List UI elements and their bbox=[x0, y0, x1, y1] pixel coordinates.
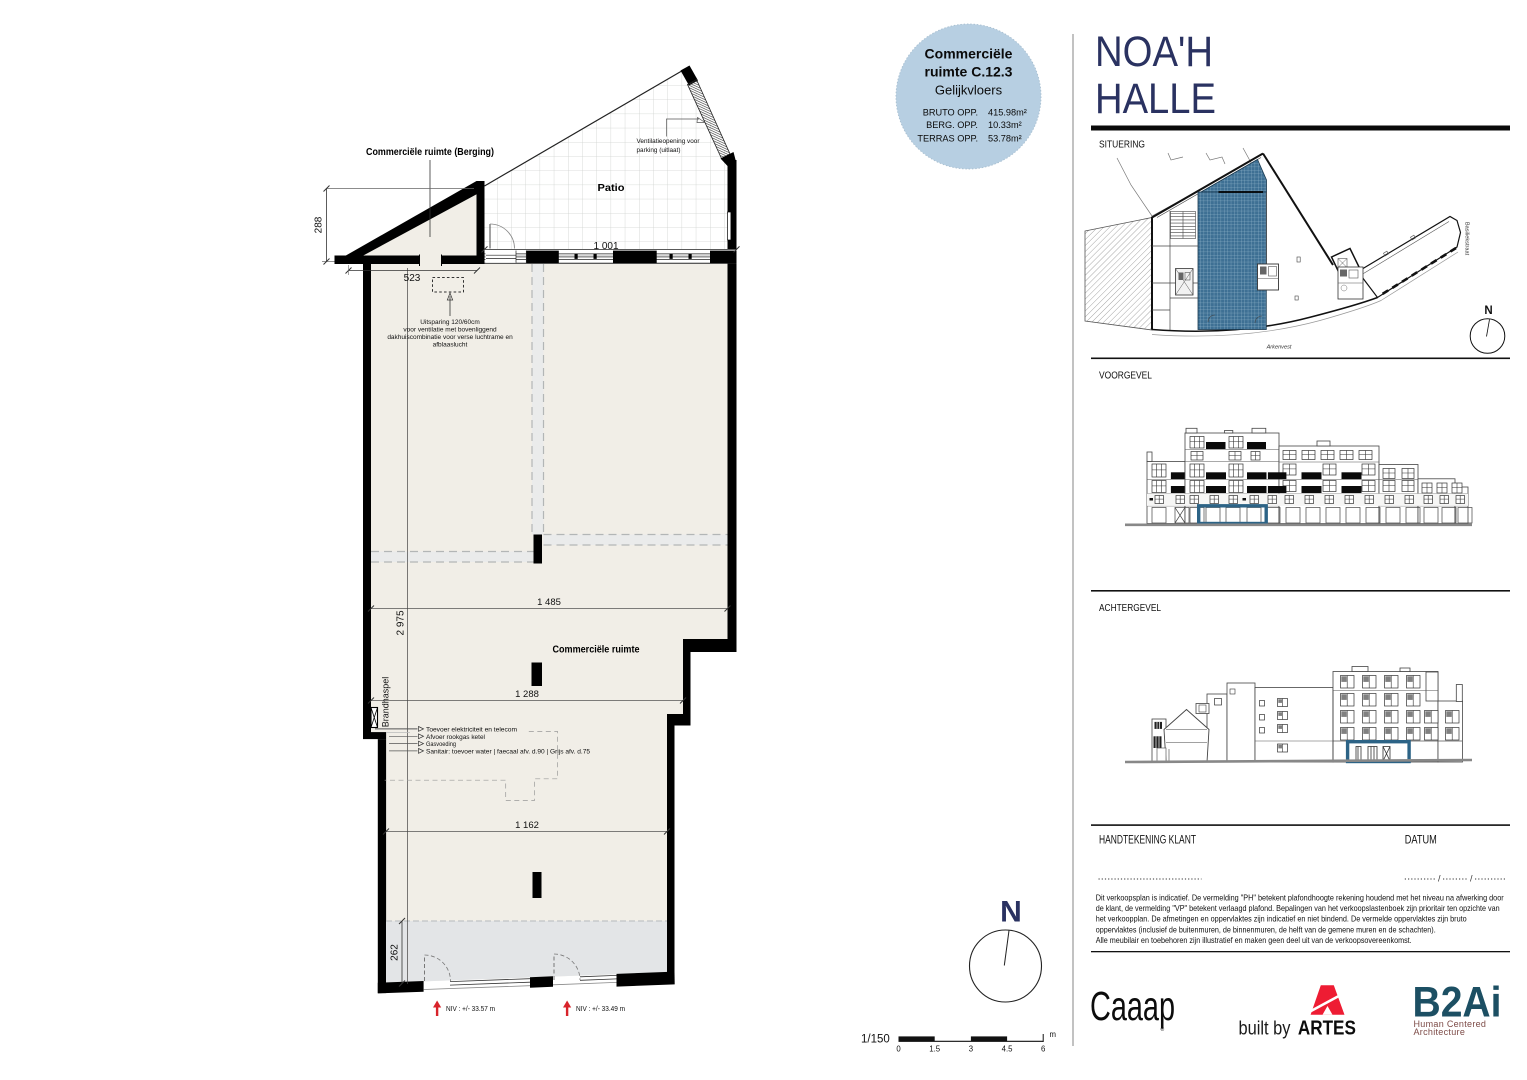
svg-text:Dit verkoopsplan is indicatief: Dit verkoopsplan is indicatief. De verme… bbox=[1096, 893, 1504, 903]
svg-text:Gasvoeding: Gasvoeding bbox=[426, 741, 456, 748]
svg-text:1.5: 1.5 bbox=[929, 1045, 941, 1054]
svg-text:Toevoer elektriciteit en telec: Toevoer elektriciteit en telecom bbox=[426, 726, 517, 733]
svg-text:1 288: 1 288 bbox=[515, 689, 539, 700]
svg-text:DATUM: DATUM bbox=[1405, 835, 1437, 847]
svg-text:NIV : +/- 33.57 m: NIV : +/- 33.57 m bbox=[446, 1004, 495, 1013]
svg-text:Arkenvest: Arkenvest bbox=[1266, 345, 1292, 351]
svg-text:6: 6 bbox=[1041, 1045, 1045, 1054]
svg-text:10.33m²: 10.33m² bbox=[988, 120, 1022, 130]
svg-text:ARTES: ARTES bbox=[1298, 1018, 1356, 1040]
svg-text:1 001: 1 001 bbox=[593, 241, 618, 252]
svg-text:Brandhaspel: Brandhaspel bbox=[381, 677, 391, 728]
svg-text:N: N bbox=[1484, 305, 1492, 317]
svg-text:415.98m²: 415.98m² bbox=[988, 107, 1027, 117]
svg-text:288: 288 bbox=[314, 216, 325, 233]
svg-text:Architecture: Architecture bbox=[1414, 1027, 1466, 1037]
svg-text:Commerciële ruimte (Berging): Commerciële ruimte (Berging) bbox=[366, 146, 494, 158]
svg-text:TERRAS OPP.: TERRAS OPP. bbox=[917, 133, 978, 143]
svg-text:/: / bbox=[1438, 874, 1441, 884]
svg-text:53.78m²: 53.78m² bbox=[988, 133, 1022, 143]
svg-text:ruimte C.12.3: ruimte C.12.3 bbox=[925, 64, 1013, 80]
svg-text:ACHTERGEVEL: ACHTERGEVEL bbox=[1099, 602, 1161, 614]
svg-text:BRUTO OPP.: BRUTO OPP. bbox=[923, 107, 978, 117]
svg-text:Afvoer rookgas ketel: Afvoer rookgas ketel bbox=[426, 734, 485, 741]
svg-text:VOORGEVEL: VOORGEVEL bbox=[1099, 370, 1152, 382]
svg-text:Basiliekstraat: Basiliekstraat bbox=[1464, 222, 1470, 256]
svg-text:3: 3 bbox=[969, 1045, 973, 1054]
svg-text:m: m bbox=[1050, 1030, 1057, 1039]
svg-text:1 162: 1 162 bbox=[515, 820, 539, 831]
svg-text:2 975: 2 975 bbox=[396, 610, 407, 635]
svg-text:parking (uitlaat): parking (uitlaat) bbox=[637, 147, 681, 154]
svg-text:Uitsparing 120/60cm: Uitsparing 120/60cm bbox=[420, 319, 480, 326]
svg-text:Gelijkvloers: Gelijkvloers bbox=[935, 83, 1003, 98]
svg-text:het verkoopplan. De afmetingen: het verkoopplan. De afmetingen en opperv… bbox=[1096, 914, 1467, 924]
svg-text:Alle meubilair en toebehoren z: Alle meubilair en toebehoren zijn illust… bbox=[1096, 935, 1412, 945]
svg-text:NIV : +/- 33.49 m: NIV : +/- 33.49 m bbox=[576, 1004, 625, 1013]
svg-text:Commerciële: Commerciële bbox=[925, 46, 1013, 62]
svg-text:Commerciële ruimte: Commerciële ruimte bbox=[553, 644, 640, 656]
svg-text:oppervlaktes (inclusief de bui: oppervlaktes (inclusief de buitenmuren, … bbox=[1096, 924, 1436, 934]
svg-text:HANDTEKENING KLANT: HANDTEKENING KLANT bbox=[1099, 835, 1196, 847]
svg-text:Patio: Patio bbox=[598, 182, 625, 194]
svg-text:Ventilatieopening voor: Ventilatieopening voor bbox=[637, 138, 701, 145]
svg-text:/: / bbox=[1470, 874, 1473, 884]
svg-text:Sanitair: toevoer water | faec: Sanitair: toevoer water | faecaal afv. d… bbox=[426, 748, 590, 755]
svg-text:4.5: 4.5 bbox=[1002, 1045, 1014, 1054]
svg-text:0: 0 bbox=[896, 1045, 901, 1054]
svg-text:dakhuiscombinatie voor verse l: dakhuiscombinatie voor verse luchtrame e… bbox=[387, 334, 513, 341]
svg-text:BERG. OPP.: BERG. OPP. bbox=[926, 120, 978, 130]
svg-text:SITUERING: SITUERING bbox=[1099, 139, 1145, 151]
svg-text:523: 523 bbox=[404, 273, 421, 284]
svg-text:1 485: 1 485 bbox=[537, 597, 561, 608]
svg-text:HALLE: HALLE bbox=[1095, 76, 1216, 123]
svg-text:262: 262 bbox=[390, 944, 401, 961]
svg-text:1/150: 1/150 bbox=[861, 1034, 890, 1046]
svg-text:voor ventilatie met bovenligge: voor ventilatie met bovenliggend bbox=[403, 327, 497, 334]
svg-text:N: N bbox=[1000, 896, 1022, 929]
svg-text:built by: built by bbox=[1239, 1019, 1291, 1040]
svg-text:de klant, de vermelding "VP" b: de klant, de vermelding "VP" betekent ve… bbox=[1096, 903, 1500, 913]
svg-text:NOA'H: NOA'H bbox=[1095, 29, 1213, 76]
svg-text:afblaaslucht: afblaaslucht bbox=[433, 342, 468, 349]
svg-text:Caaap: Caaap bbox=[1090, 983, 1175, 1029]
svg-text:®: ® bbox=[1161, 1026, 1165, 1033]
